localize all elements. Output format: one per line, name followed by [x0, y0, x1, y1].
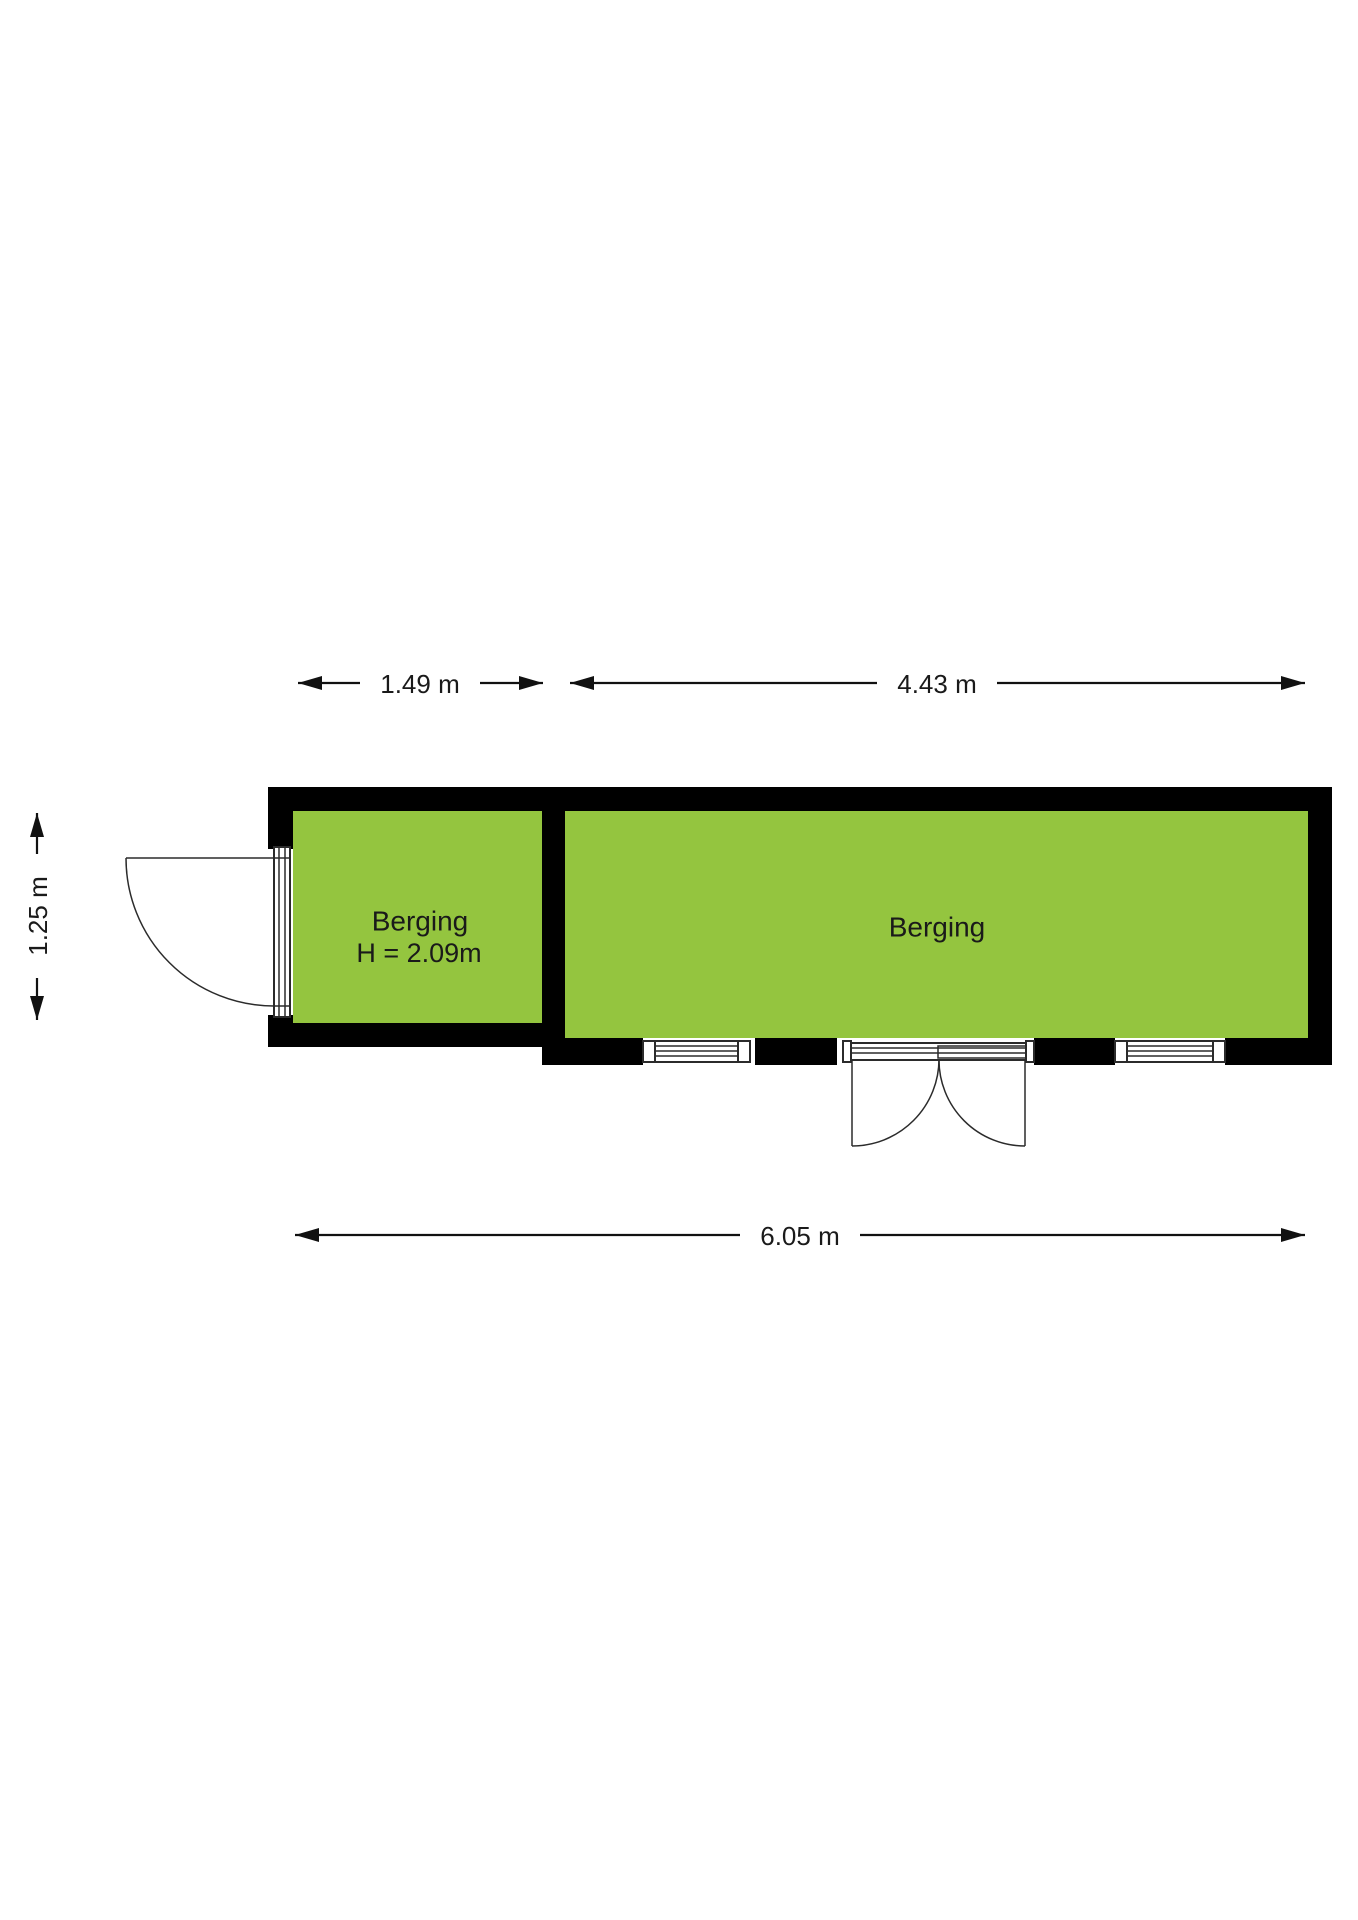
double-door-right-jamb — [1026, 1041, 1034, 1062]
wall-room2-bottom-seg2 — [755, 1038, 837, 1065]
window-1 — [643, 1041, 750, 1062]
room-1-height-label: H = 2.09m — [356, 938, 481, 968]
window-2-left-frame — [1115, 1041, 1127, 1062]
window-2-right-frame — [1213, 1041, 1225, 1062]
dimension-left-value: 1.25 m — [23, 876, 53, 956]
double-door-left-swing-arc — [852, 1059, 939, 1146]
arrow-left-icon — [295, 1228, 319, 1242]
arrow-left-icon — [570, 676, 594, 690]
dimension-left: 1.25 m — [21, 813, 53, 1020]
double-door — [843, 1041, 1034, 1146]
floorplan-canvas: Berging H = 2.09m Berging 1.49 m 4.43 m … — [0, 0, 1358, 1920]
dimension-top-left-value: 1.49 m — [380, 669, 460, 699]
arrow-up-icon — [30, 813, 44, 837]
arrow-right-icon — [1281, 676, 1305, 690]
left-door — [126, 847, 290, 1017]
window-2 — [1115, 1041, 1225, 1062]
room-1-label: Berging — [372, 906, 469, 937]
room-2-label: Berging — [889, 912, 986, 943]
wall-top — [268, 787, 1332, 811]
wall-room2-bottom-seg3 — [1034, 1038, 1115, 1065]
arrow-right-icon — [1281, 1228, 1305, 1242]
arrow-left-icon — [298, 676, 322, 690]
wall-room1-bottom — [268, 1023, 565, 1047]
dimension-top-left: 1.49 m — [298, 667, 543, 699]
dimension-bottom-value: 6.05 m — [760, 1221, 840, 1251]
arrow-down-icon — [30, 996, 44, 1020]
dimension-top-right: 4.43 m — [570, 667, 1305, 699]
dimension-top-right-value: 4.43 m — [897, 669, 977, 699]
window-1-left-frame — [643, 1041, 655, 1062]
left-door-frame — [274, 847, 290, 1017]
wall-left-upper — [268, 787, 293, 849]
left-door-swing-arc — [126, 858, 274, 1006]
wall-right — [1308, 787, 1332, 1065]
arrow-right-icon — [519, 676, 543, 690]
dimension-bottom: 6.05 m — [295, 1219, 1305, 1251]
wall-interior — [542, 787, 565, 1065]
double-door-left-jamb — [843, 1041, 851, 1062]
wall-room2-bottom-seg1 — [565, 1038, 643, 1065]
window-1-right-frame — [738, 1041, 750, 1062]
double-door-right-swing-arc — [939, 1060, 1025, 1146]
floorplan-page: Berging H = 2.09m Berging 1.49 m 4.43 m … — [0, 0, 1358, 1920]
